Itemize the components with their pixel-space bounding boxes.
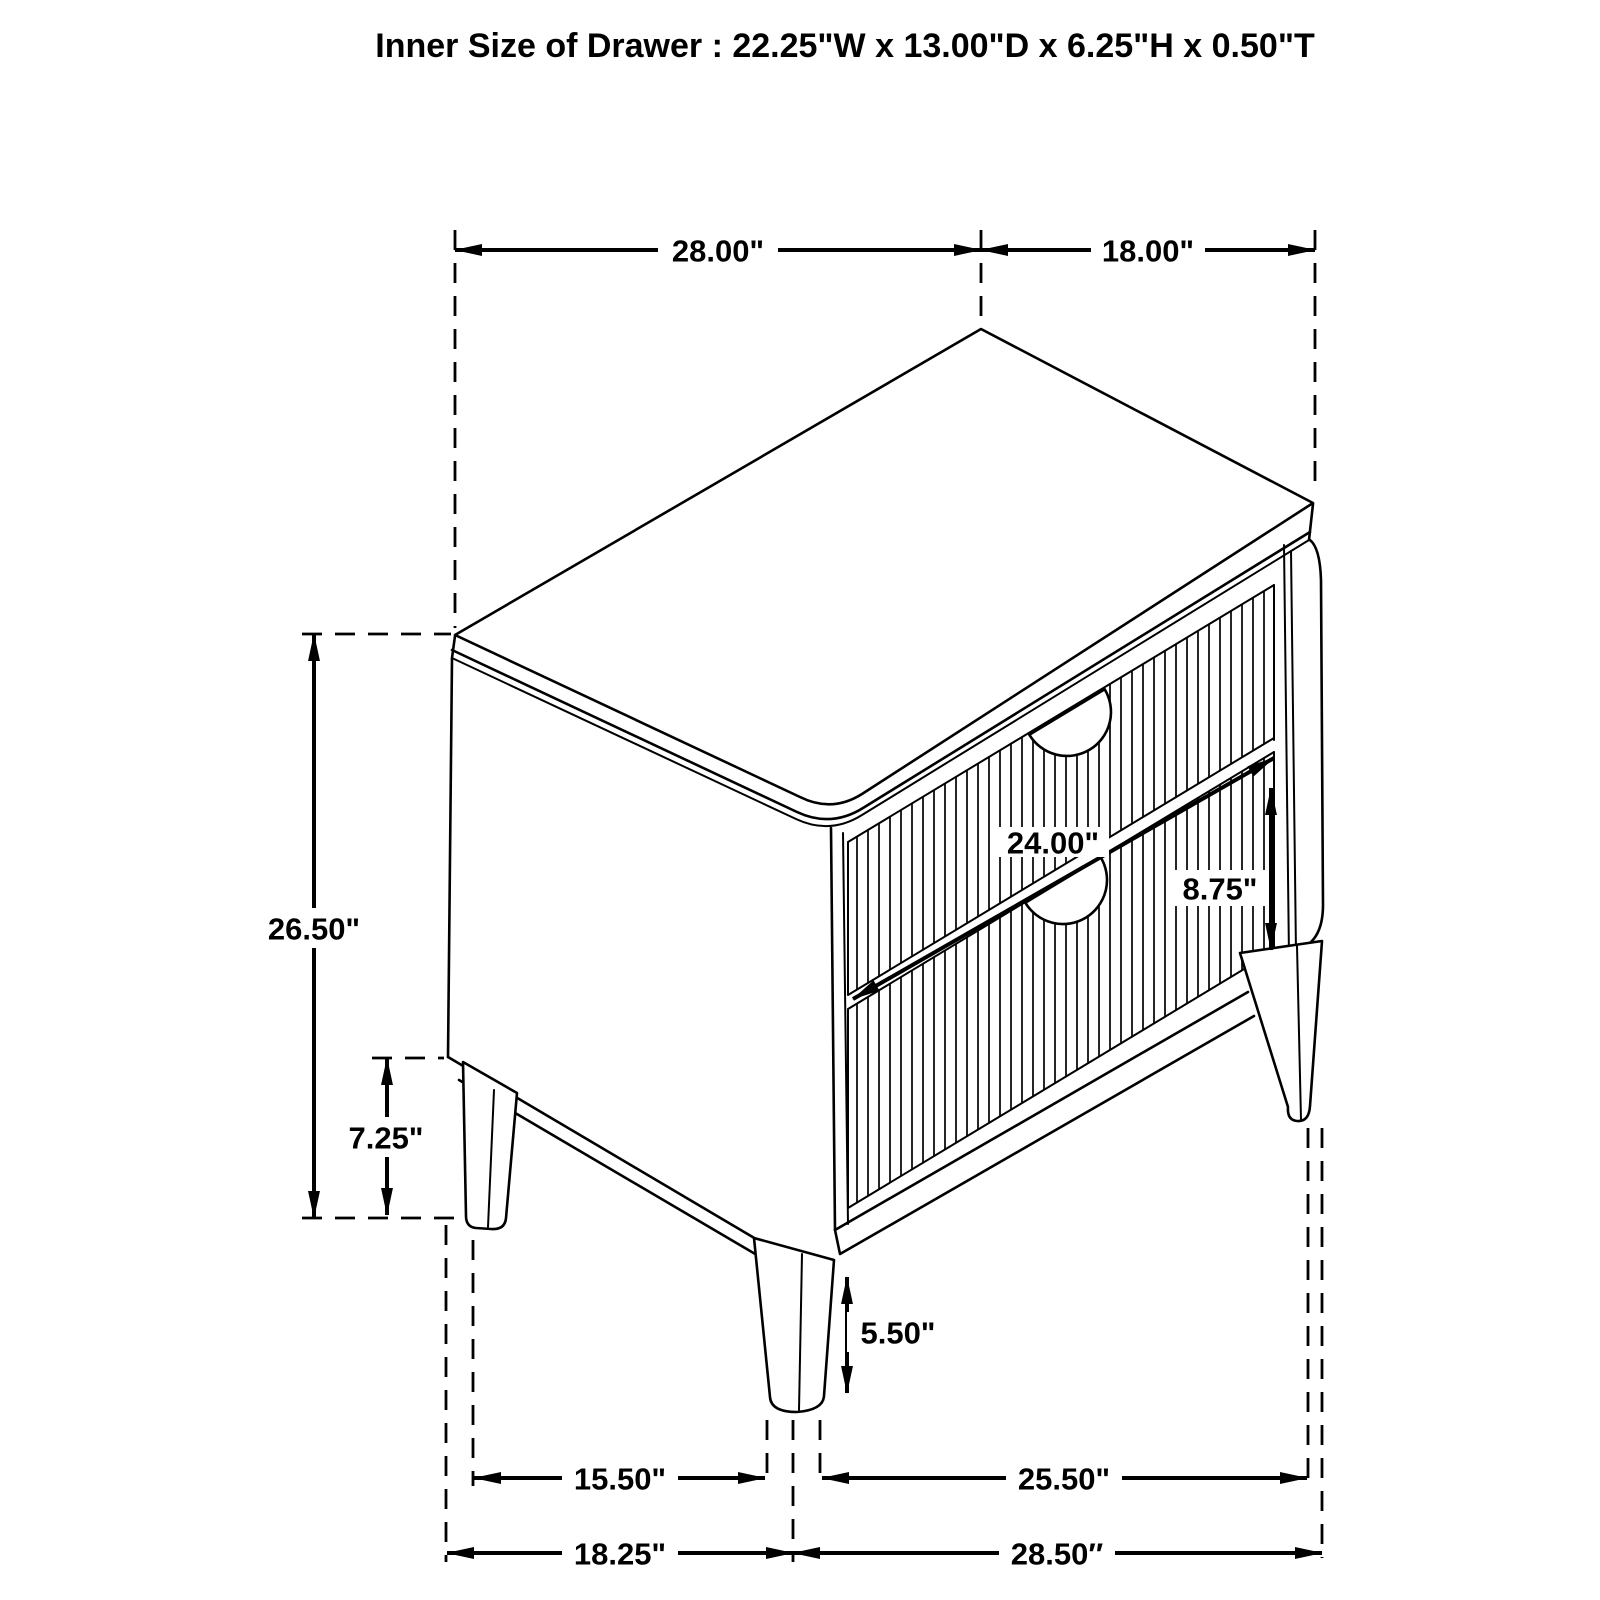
dim-label-foot-span-left: 15.50" xyxy=(574,1462,666,1497)
cabinet-left-edge xyxy=(448,658,452,1057)
dim-label-foot-span-right: 25.50" xyxy=(1018,1462,1110,1497)
drawer2-pull xyxy=(1025,857,1107,924)
diagram-page: Inner Size of Drawer : 22.25"W x 13.00"D… xyxy=(0,0,1600,1600)
dim-label-base-span-left: 18.25" xyxy=(574,1537,666,1572)
center-leg xyxy=(754,1238,834,1412)
cabinet-right-edge xyxy=(1300,540,1323,949)
right-leg xyxy=(1240,941,1322,1121)
dim-label-drawer-width: 24.00" xyxy=(1007,826,1099,861)
dim-label-top-span-left: 28.00" xyxy=(672,234,764,269)
cabinet-top-edge-1 xyxy=(452,532,1310,819)
dimension-labels: 28.00" 18.00" 26.50" 7.25" 24.00" 8.75" … xyxy=(256,230,1268,1573)
frame-right-stile-inner xyxy=(1291,551,1296,953)
cabinet-top-corner-right xyxy=(1309,504,1313,540)
cabinet-drawing xyxy=(448,329,1323,1258)
dim-label-top-span-right: 18.00" xyxy=(1102,234,1194,269)
dim-label-drawer-stack-height: 8.75" xyxy=(1182,872,1257,907)
dim-label-front-leg-height: 5.50" xyxy=(860,1316,935,1351)
dim-label-base-clearance: 7.25" xyxy=(348,1121,423,1156)
drawer-pulls xyxy=(1025,689,1111,924)
cabinet-front-bottom-edge xyxy=(835,992,1248,1230)
dim-label-overall-height: 26.50" xyxy=(268,912,360,947)
furniture-dimension-diagram: Inner Size of Drawer : 22.25"W x 13.00"D… xyxy=(0,0,1600,1600)
dim-label-base-span-right: 28.50″ xyxy=(1011,1537,1104,1572)
frame-right-stile-outer xyxy=(1284,545,1289,958)
cabinet-top-corner-left xyxy=(452,636,455,658)
cabinet-top-face xyxy=(455,329,1313,804)
diagram-title: Inner Size of Drawer : 22.25"W x 13.00"D… xyxy=(375,27,1315,65)
cabinet-near-corner-edge xyxy=(831,828,835,1230)
